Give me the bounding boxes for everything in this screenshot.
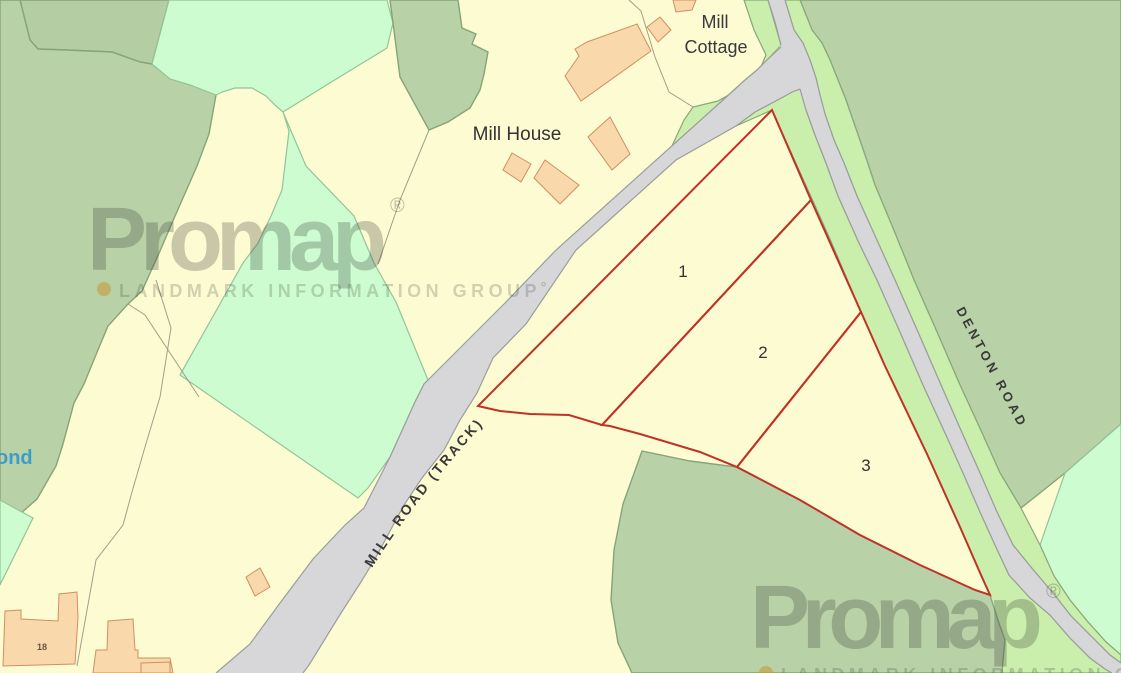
svg-text:Promap: Promap bbox=[87, 190, 387, 290]
svg-text:®: ® bbox=[390, 195, 405, 217]
svg-text:3: 3 bbox=[861, 456, 870, 475]
svg-text:Mill House: Mill House bbox=[473, 124, 562, 145]
svg-text:ond: ond bbox=[0, 447, 33, 469]
svg-text:Cottage: Cottage bbox=[684, 37, 747, 57]
svg-text:LANDMARK INFORMATION GROUP˚: LANDMARK INFORMATION GROUP˚ bbox=[781, 665, 1121, 673]
svg-text:2: 2 bbox=[758, 343, 767, 362]
svg-text:18: 18 bbox=[37, 642, 47, 652]
svg-text:®: ® bbox=[1046, 581, 1061, 603]
svg-text:Promap: Promap bbox=[750, 568, 1043, 668]
svg-text:Mill: Mill bbox=[702, 12, 729, 32]
svg-text:1: 1 bbox=[678, 262, 687, 281]
